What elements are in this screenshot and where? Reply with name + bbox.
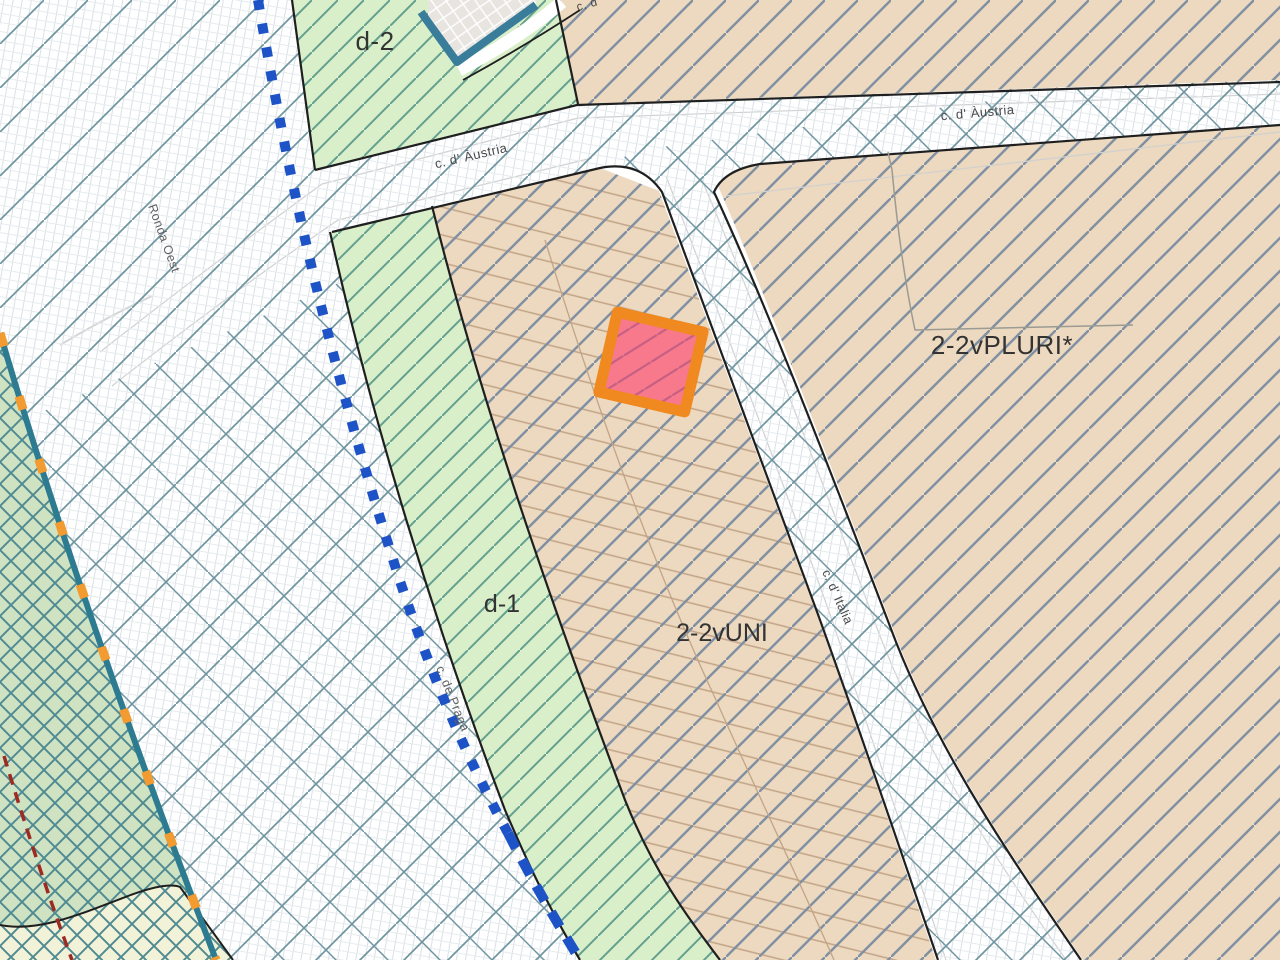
zone-label-pluri: 2-2vPLURI*: [931, 330, 1073, 360]
zone-label-d1: d-1: [484, 590, 520, 618]
selected-parcel-highlight[interactable]: [599, 312, 703, 412]
zone-label-d2: d-2: [355, 26, 394, 56]
zone-label-uni: 2-2vUNI: [676, 619, 768, 647]
zoning-map[interactable]: d-2 d-1 2-2vUNI 2-2vPLURI* c. d' Àustria…: [0, 0, 1280, 960]
map-canvas[interactable]: d-2 d-1 2-2vUNI 2-2vPLURI* c. d' Àustria…: [0, 0, 1280, 960]
white-area-hatching: [0, 0, 1280, 960]
